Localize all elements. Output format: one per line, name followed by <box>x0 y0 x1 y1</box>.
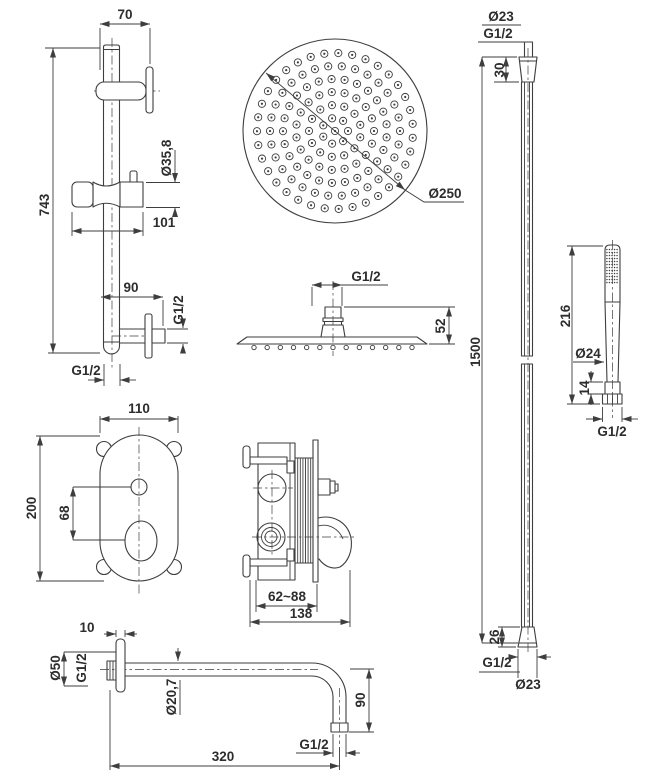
nozzle-dot <box>343 168 345 170</box>
dim-label: G1/2 <box>597 424 626 439</box>
nozzle-dot <box>614 255 616 257</box>
nozzle-dot <box>318 179 320 181</box>
wall-spout: 10 Ø50 G1/2 Ø20,7 90 G1/2 3 <box>48 620 374 770</box>
nozzle-dot <box>306 174 308 176</box>
nozzle-dot <box>611 270 613 272</box>
nozzle-dot <box>319 151 321 153</box>
nozzle-dot <box>614 267 616 269</box>
nozzle-dot <box>331 169 333 171</box>
nozzle-dot <box>267 90 269 92</box>
nozzle-dot <box>393 103 395 105</box>
nozzle-dot <box>409 150 411 152</box>
dim-spout-wall-thread: G1/2 <box>74 653 89 682</box>
nozzle-dot <box>614 276 616 278</box>
nozzle-dot <box>616 273 618 275</box>
mount-screw-head <box>243 555 250 577</box>
nozzle-dot <box>342 120 344 122</box>
dim-handshower-nut: 14 <box>577 371 603 405</box>
nozzle-dot <box>291 345 295 349</box>
nozzle-dot <box>616 249 618 251</box>
nozzle-dot <box>611 279 613 281</box>
nozzle-dot <box>616 264 618 266</box>
nozzle-dot <box>616 261 618 263</box>
nozzle-dot <box>300 148 302 150</box>
nozzle-dot <box>397 345 401 349</box>
nozzle-dot <box>611 258 613 260</box>
nozzle-dot <box>609 270 611 272</box>
nozzle-dot <box>377 65 379 67</box>
nozzle-dot <box>324 207 326 209</box>
nozzle-dot <box>606 264 608 266</box>
nozzle-dot <box>288 155 290 157</box>
shower-rail: 70 743 Ø35,8 101 90 G1/2 <box>37 7 188 386</box>
nozzle-dot <box>356 177 358 179</box>
dim-label: 10 <box>79 620 94 635</box>
nozzle-dot <box>281 92 283 94</box>
spout-wall-thread-stub <box>107 661 116 680</box>
dim-hose-bottom-dia: Ø23 <box>512 649 551 692</box>
nozzle-dot <box>367 90 369 92</box>
nozzle-dot <box>355 163 357 165</box>
dim-handshower-thread: G1/2 <box>586 407 638 439</box>
nozzle-dot <box>314 68 316 70</box>
nozzle-dot <box>290 178 292 180</box>
nozzle-dot <box>261 103 263 105</box>
nozzle-dot <box>371 117 373 119</box>
nozzle-dot <box>365 106 367 108</box>
nozzle-dot <box>355 97 357 99</box>
dim-label: 90 <box>123 280 138 295</box>
dim-outlet-offset: 90 <box>101 280 163 326</box>
dim-label: 138 <box>290 606 313 621</box>
sleeve-clip <box>287 549 294 561</box>
nozzle-dot <box>609 264 611 266</box>
nozzle-dot <box>382 111 384 113</box>
nozzle-dot <box>331 345 335 349</box>
nozzle-dot <box>308 130 310 132</box>
dim-label: G1/2 <box>483 26 512 41</box>
nozzle-dot <box>376 99 378 101</box>
dim-square-head-thread: G1/2 <box>312 269 388 306</box>
nozzle-dot <box>393 156 395 158</box>
dim-label: G1/2 <box>71 363 100 378</box>
stub-thread-lines <box>110 661 113 680</box>
nozzle-dot <box>341 195 343 197</box>
dim-label: 52 <box>433 318 448 333</box>
nozzle-dot <box>306 86 308 88</box>
drawing-canvas: 70 743 Ø35,8 101 90 G1/2 <box>0 0 657 778</box>
nozzle-dot <box>344 181 346 183</box>
nozzle-dot <box>606 258 608 260</box>
nozzle-dot <box>357 345 361 349</box>
nozzle-dot <box>301 74 303 76</box>
nozzle-dot <box>609 273 611 275</box>
nozzle-dot <box>269 130 271 132</box>
nozzle-dot <box>606 267 608 269</box>
nozzle-dot <box>611 264 613 266</box>
nozzle-dot <box>377 82 379 84</box>
dim-label: 68 <box>57 505 72 521</box>
nozzle-dot <box>318 166 320 168</box>
hose-tube <box>522 82 533 627</box>
nozzle-dot <box>373 130 375 132</box>
nozzle-dot <box>365 154 367 156</box>
nozzle-dot <box>331 104 333 106</box>
nozzle-dot <box>399 130 401 132</box>
nozzle-dot <box>616 252 618 254</box>
wall-plate <box>313 440 318 582</box>
nozzle-dot <box>270 143 272 145</box>
dim-label: Ø250 <box>428 186 461 201</box>
nozzle-dot <box>331 143 333 145</box>
nozzle-dot <box>301 186 303 188</box>
wall-bracket-arm <box>96 82 146 100</box>
nozzle-dot <box>275 103 277 105</box>
dim-label: Ø20,7 <box>164 679 179 716</box>
nozzle-dot <box>318 94 320 96</box>
nozzle-dot <box>297 199 299 201</box>
head-plate <box>237 337 427 344</box>
dim-handshower-length: 216 <box>558 246 603 404</box>
spout-centerlines <box>100 670 340 745</box>
dim-hose-top-dia: Ø23 <box>482 9 521 25</box>
nozzle-dot <box>353 113 355 115</box>
dim-label: 320 <box>212 749 235 764</box>
nozzle-dot <box>304 345 308 349</box>
dim-label: G1/2 <box>74 653 89 682</box>
nozzle-dot <box>265 345 269 349</box>
nozzle-dot <box>606 282 608 284</box>
mount-screw-shaft <box>250 457 287 464</box>
dim-rail-bottom-thread: G1/2 <box>71 363 136 386</box>
nozzle-dot <box>331 156 333 158</box>
dim-label: 30 <box>492 62 507 77</box>
dim-slider-diameter: Ø35,8 <box>146 139 180 214</box>
nozzle-dot <box>611 261 613 263</box>
nozzle-dot <box>614 279 616 281</box>
nozzle-dot <box>275 156 277 158</box>
nozzle-dot <box>275 181 277 183</box>
nozzle-dot <box>614 273 616 275</box>
nozzle-dot <box>386 92 388 94</box>
nozzle-dot <box>370 345 374 349</box>
nozzle-dot <box>331 117 333 119</box>
mount-screw-shaft <box>250 559 287 566</box>
dim-square-head-height: 52 <box>344 307 455 344</box>
nozzle-dot <box>343 92 345 94</box>
nozzle-dot <box>281 168 283 170</box>
nozzle-dot <box>371 143 373 145</box>
nozzle-dot <box>347 130 349 132</box>
nozzle-dot <box>327 195 329 197</box>
slider-left-block <box>72 182 93 207</box>
dim-spout-drop: 90 <box>349 669 374 732</box>
nozzle-dot <box>330 78 332 80</box>
nozzle-dot <box>295 136 297 138</box>
spout-flange <box>116 639 125 692</box>
dim-label: Ø24 <box>575 346 601 361</box>
shower-hose: Ø23 G1/2 30 1500 26 G1/2 <box>468 9 551 692</box>
nozzle-dot <box>283 117 285 119</box>
dim-spout-outlet-thread: G1/2 <box>296 734 360 757</box>
nozzle-dot <box>611 282 613 284</box>
nozzle-dot <box>616 267 618 269</box>
dim-spout-length: 320 <box>110 690 340 770</box>
mixer-front-view: 110 200 68 <box>24 401 182 596</box>
nozzle-dot <box>311 118 313 120</box>
elbow-wall-flange <box>145 314 152 358</box>
nozzle-dot <box>338 208 340 210</box>
nozzle-dot <box>606 255 608 257</box>
nozzle-dot <box>331 182 333 184</box>
dim-label: Ø23 <box>488 9 514 24</box>
nozzle-dot <box>296 166 298 168</box>
dim-label: 62~88 <box>268 589 306 604</box>
nozzle-dot <box>322 124 324 126</box>
nozzle-dot <box>354 192 356 194</box>
nozzle-dot <box>606 261 608 263</box>
nozzle-dot <box>609 255 611 257</box>
nozzle-dot <box>611 273 613 275</box>
nozzle-dot <box>257 116 259 118</box>
nozzle-dot <box>256 130 258 132</box>
nozzle-dot <box>297 61 299 63</box>
slider-pin <box>130 171 137 183</box>
dim-label: G1/2 <box>351 269 380 284</box>
dim-hose-length: 1500 <box>468 57 518 643</box>
dim-label: Ø50 <box>48 655 63 681</box>
nozzle-dot <box>366 74 368 76</box>
nozzle-dot <box>606 279 608 281</box>
nozzle-dot <box>267 170 269 172</box>
nozzle-dot <box>609 249 611 251</box>
dim-handshower-dia: Ø24 <box>573 346 604 362</box>
dim-label: 101 <box>153 215 176 230</box>
nozzle-dot <box>404 96 406 98</box>
nozzle-dot <box>310 56 312 58</box>
nozzle-dot <box>616 279 618 281</box>
nozzle-dot <box>606 273 608 275</box>
nozzle-dot <box>364 58 366 60</box>
mount-screw-head <box>243 446 250 468</box>
dim-hose-bottom-nut: 26 <box>487 627 520 647</box>
nozzle-dot <box>611 252 613 254</box>
nozzle-dot <box>300 111 302 113</box>
nozzle-dot <box>606 249 608 251</box>
nozzle-dot <box>616 255 618 257</box>
nozzle-dot <box>397 84 399 86</box>
dim-label: 200 <box>24 497 39 520</box>
diverter-stem <box>318 479 330 495</box>
nozzle-dot <box>386 168 388 170</box>
nozzle-dot <box>606 252 608 254</box>
square-head-nozzle-row <box>252 345 414 349</box>
dim-label: 26 <box>487 629 502 645</box>
nozzle-dot <box>351 54 353 56</box>
dim-label: 90 <box>353 692 368 707</box>
elbow-dome-outlet <box>104 338 120 354</box>
nozzle-dot <box>397 176 399 178</box>
round-shower-head: Ø250 <box>243 39 464 223</box>
sleeve-clip <box>287 461 294 473</box>
nozzle-dot <box>343 154 345 156</box>
nozzle-dot <box>278 345 282 349</box>
nozzle-dot <box>397 143 399 145</box>
slider-waist <box>93 182 120 207</box>
nozzle-dot <box>606 276 608 278</box>
nozzle-dot <box>609 276 611 278</box>
nozzle-dot <box>614 261 616 263</box>
nozzle-dot <box>319 108 321 110</box>
nozzle-dot <box>388 73 390 75</box>
dim-outlet-thread: G1/2 <box>167 295 188 352</box>
nozzle-dot <box>337 52 339 54</box>
nozzle-dot <box>354 68 356 70</box>
nozzle-dot <box>311 142 313 144</box>
nozzle-dot <box>611 255 613 257</box>
nozzle-dot <box>616 270 618 272</box>
hose-top-thread-stub <box>525 42 533 57</box>
dim-label: 216 <box>558 304 573 327</box>
wall-bracket-flange <box>146 67 153 113</box>
mixer-side-view: 62~88 138 <box>243 440 355 627</box>
dim-rail-top-offset: 70 <box>100 7 150 70</box>
nozzle-dot <box>365 202 367 204</box>
nozzle-dot <box>284 143 286 145</box>
dim-hose-top-thread: G1/2 <box>478 26 524 42</box>
nozzle-dot <box>614 249 616 251</box>
dim-label: Ø35,8 <box>159 139 174 176</box>
nozzle-dot <box>310 204 312 206</box>
nozzle-dot <box>404 164 406 166</box>
nozzle-dot <box>614 258 616 260</box>
nozzle-dot <box>356 83 358 85</box>
nozzle-dot <box>377 195 379 197</box>
dim-label: 1500 <box>468 337 483 367</box>
nozzle-dot <box>382 149 384 151</box>
nozzle-dot <box>616 258 618 260</box>
technical-drawing: 70 743 Ø35,8 101 90 G1/2 <box>0 0 657 778</box>
dim-hose-top-nut: 30 <box>482 57 519 82</box>
handshower-spray-field <box>606 249 618 284</box>
nozzle-dot <box>614 270 616 272</box>
nozzle-dot <box>609 279 611 281</box>
hose-tube-inner <box>525 82 530 627</box>
nozzle-dot <box>343 106 345 108</box>
nozzle-dot <box>252 345 256 349</box>
nozzle-dot <box>342 140 344 142</box>
nozzle-dot <box>412 123 414 125</box>
nozzle-dot <box>351 206 353 208</box>
dim-label: Ø23 <box>515 677 541 692</box>
nozzle-dot <box>290 82 292 84</box>
nozzle-dot <box>383 345 387 349</box>
dim-label: 70 <box>117 7 132 22</box>
nozzle-dot <box>307 159 309 161</box>
dim-flange-thickness: 10 <box>79 620 137 637</box>
nozzle-dot <box>609 282 611 284</box>
spout-tube <box>125 663 346 723</box>
nozzle-dot <box>341 65 343 67</box>
hand-shower: 216 Ø24 14 G1/2 <box>558 240 638 439</box>
nozzle-dot <box>344 345 348 349</box>
dim-holder-length: 101 <box>72 212 176 236</box>
nozzle-dot <box>285 69 287 71</box>
nozzle-dot <box>285 191 287 193</box>
nozzle-dot <box>318 81 320 83</box>
nozzle-dot <box>609 267 611 269</box>
dim-label: 743 <box>37 193 52 216</box>
nozzle-dot <box>616 276 618 278</box>
nozzle-dot <box>296 94 298 96</box>
handshower-nut-knurl <box>608 394 618 404</box>
nozzle-dot <box>367 170 369 172</box>
nozzle-dot <box>359 136 361 138</box>
nozzle-dot <box>323 53 325 55</box>
nozzle-dot <box>314 192 316 194</box>
nozzle-dot <box>257 144 259 146</box>
mixer-handle <box>318 517 351 568</box>
nozzle-dot <box>376 160 378 162</box>
dim-label: G1/2 <box>482 655 511 670</box>
nozzle-dot <box>366 186 368 188</box>
nozzle-dot <box>270 116 272 118</box>
nozzle-dot <box>288 105 290 107</box>
nozzle-dot <box>412 137 414 139</box>
dim-label: 14 <box>577 380 592 396</box>
dim-label: 110 <box>128 401 150 416</box>
dim-label: G1/2 <box>171 295 186 324</box>
nozzle-dot <box>307 101 309 103</box>
nozzle-dot <box>606 270 608 272</box>
nozzle-dot <box>616 282 618 284</box>
nozzle-dot <box>614 282 616 284</box>
nozzle-dot <box>318 345 322 349</box>
diverter-cap <box>330 481 335 493</box>
nozzle-dot <box>359 124 361 126</box>
nozzle-dot <box>331 91 333 93</box>
nozzle-dot <box>409 109 411 111</box>
nozzle-dot <box>611 267 613 269</box>
nozzle-dot <box>609 252 611 254</box>
dim-hose-bottom-thread: G1/2 <box>479 655 520 672</box>
nozzle-dot <box>386 136 388 138</box>
nozzle-dot <box>343 79 345 81</box>
nozzle-dot <box>611 249 613 251</box>
slider-right-block <box>120 182 143 207</box>
nozzle-dot <box>609 261 611 263</box>
nozzle-dot <box>410 345 414 349</box>
nozzle-dot <box>261 157 263 159</box>
nozzle-dot <box>609 258 611 260</box>
nozzle-dot <box>282 130 284 132</box>
dim-tube-dia: Ø20,7 <box>164 648 180 715</box>
elbow-wall-nub <box>152 329 165 343</box>
nozzle-dot <box>614 252 616 254</box>
nozzle-dot <box>327 65 329 67</box>
hose-bottom-cone-nut <box>518 627 537 647</box>
nozzle-dot <box>322 136 324 138</box>
nozzle-dot <box>388 186 390 188</box>
square-head-side-view: G1/2 52 <box>237 269 455 356</box>
dim-label: G1/2 <box>299 737 328 752</box>
nozzle-dot <box>614 264 616 266</box>
nozzle-dot <box>397 116 399 118</box>
nozzle-dot <box>377 178 379 180</box>
nozzle-dot <box>295 123 297 125</box>
nozzle-dot <box>385 123 387 125</box>
nozzle-dot <box>611 276 613 278</box>
